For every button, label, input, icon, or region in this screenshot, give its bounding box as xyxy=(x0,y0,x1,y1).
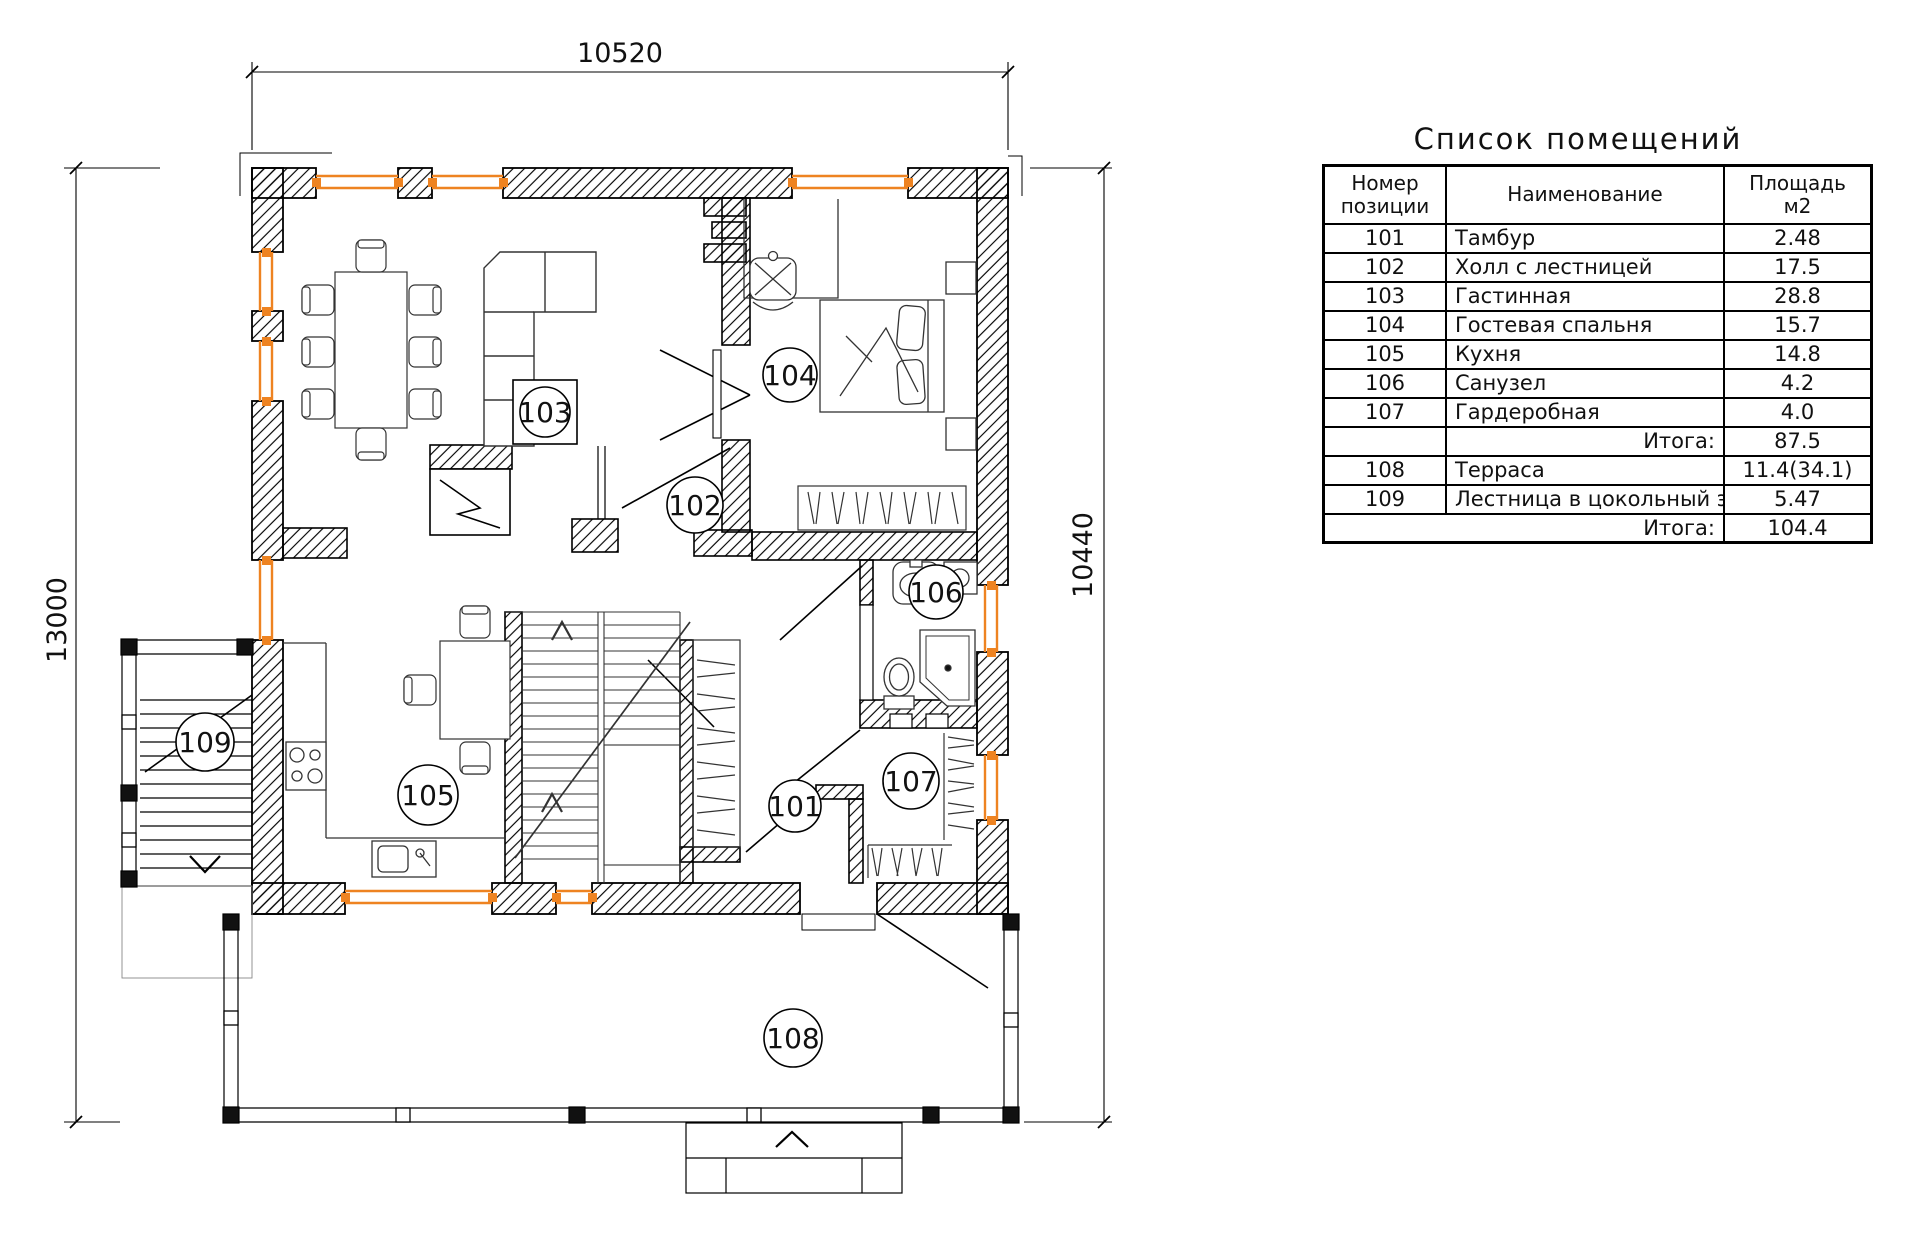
svg-text:104: 104 xyxy=(763,359,816,392)
room-label-103: 103 xyxy=(513,380,577,444)
header-area: Площадь м2 xyxy=(1724,166,1872,224)
cell-area: 4.2 xyxy=(1724,369,1872,398)
dimension-top-value: 10520 xyxy=(577,38,663,69)
table-row: 102 Холл с лестницей 17.5 xyxy=(1324,253,1872,282)
room-label-106: 106 xyxy=(909,565,963,619)
svg-text:108: 108 xyxy=(766,1022,819,1055)
room-labels: 103 104 102 106 105 101 107 108 xyxy=(176,348,963,1067)
cell-name: Гардеробная xyxy=(1446,398,1724,427)
cell-area: 4.0 xyxy=(1724,398,1872,427)
table-row: 103 Гастинная 28.8 xyxy=(1324,282,1872,311)
cell-num: 108 xyxy=(1324,456,1447,485)
dimension-right-value: 10440 xyxy=(1068,512,1099,598)
cell-num: 105 xyxy=(1324,340,1447,369)
svg-text:107: 107 xyxy=(884,765,937,798)
stove xyxy=(286,742,326,790)
svg-text:103: 103 xyxy=(518,396,571,429)
cell-area: 2.48 xyxy=(1724,224,1872,253)
room-list-title: Список помещений xyxy=(1322,122,1834,156)
cell-area: 5.47 xyxy=(1724,485,1872,514)
room-label-105: 105 xyxy=(398,765,458,825)
kitchen-table xyxy=(404,606,510,774)
room-label-108: 108 xyxy=(764,1009,822,1067)
svg-text:101: 101 xyxy=(768,790,821,823)
table-row: 104 Гостевая спальня 15.7 xyxy=(1324,311,1872,340)
hall-closet xyxy=(693,640,740,847)
cell-name: Лестница в цокольный эт. xyxy=(1446,485,1724,514)
floor-plan-sheet: 10520 13000 10440 xyxy=(0,0,1920,1255)
cell-name: Кухня xyxy=(1446,340,1724,369)
bed xyxy=(820,262,976,450)
room-label-109: 109 xyxy=(176,713,234,771)
dimension-left-value: 13000 xyxy=(42,577,73,663)
room-label-104: 104 xyxy=(763,348,817,402)
main-stairs xyxy=(505,612,690,883)
svg-text:106: 106 xyxy=(909,576,962,609)
header-position-number: Номер позиции xyxy=(1324,166,1447,224)
dimension-right xyxy=(1024,162,1112,1128)
room-label-107: 107 xyxy=(883,753,939,809)
header-name: Наименование xyxy=(1446,166,1724,224)
svg-text:105: 105 xyxy=(401,779,454,812)
entry-steps xyxy=(686,1123,902,1193)
room-label-102: 102 xyxy=(667,477,723,533)
cell-area: 17.5 xyxy=(1724,253,1872,282)
subtotal-row: Итога: 87.5 xyxy=(1324,427,1872,456)
subtotal-label: Итога: xyxy=(1446,427,1724,456)
wardrobe-rail-104 xyxy=(798,486,966,530)
cell-area: 28.8 xyxy=(1724,282,1872,311)
table-header-row: Номер позиции Наименование Площадь м2 xyxy=(1324,166,1872,224)
kitchen-sink xyxy=(372,841,436,877)
cell-num: 102 xyxy=(1324,253,1447,282)
cell-name: Терраса xyxy=(1446,456,1724,485)
svg-text:102: 102 xyxy=(668,489,721,522)
table-row: 106 Санузел 4.2 xyxy=(1324,369,1872,398)
cell-name: Холл с лестницей xyxy=(1446,253,1724,282)
cell-name: Гастинная xyxy=(1446,282,1724,311)
cell-name: Гостевая спальня xyxy=(1446,311,1724,340)
floor-plan-drawing: 10520 13000 10440 xyxy=(0,0,1180,1255)
office-chair xyxy=(750,252,796,311)
cell-num: 103 xyxy=(1324,282,1447,311)
cell-num: 104 xyxy=(1324,311,1447,340)
toilet xyxy=(884,658,914,709)
dining-table xyxy=(302,240,441,460)
cell-name: Тамбур xyxy=(1446,224,1724,253)
table-row: 108 Терраса 11.4(34.1) xyxy=(1324,456,1872,485)
cell-name: Санузел xyxy=(1446,369,1724,398)
room-label-101: 101 xyxy=(768,780,821,832)
cell-num: 106 xyxy=(1324,369,1447,398)
total-value: 104.4 xyxy=(1724,514,1872,543)
dimension-top xyxy=(246,62,1014,150)
cell-num: 101 xyxy=(1324,224,1447,253)
shower xyxy=(920,630,975,706)
dimension-left xyxy=(64,162,160,1128)
table-row: 109 Лестница в цокольный эт. 5.47 xyxy=(1324,485,1872,514)
table-row: 105 Кухня 14.8 xyxy=(1324,340,1872,369)
svg-text:109: 109 xyxy=(178,726,231,759)
cell-area: 14.8 xyxy=(1724,340,1872,369)
cell-num: 109 xyxy=(1324,485,1447,514)
room-list-table: Номер позиции Наименование Площадь м2 10… xyxy=(1322,164,1873,544)
terrace xyxy=(223,914,1019,1123)
total-row: Итога: 104.4 xyxy=(1324,514,1872,543)
table-row: 107 Гардеробная 4.0 xyxy=(1324,398,1872,427)
fireplace xyxy=(430,469,510,535)
cell-empty xyxy=(1324,427,1447,456)
subtotal-value: 87.5 xyxy=(1724,427,1872,456)
room-list-panel: Список помещений Номер позиции Наименова… xyxy=(1322,122,1834,544)
cell-num: 107 xyxy=(1324,398,1447,427)
cell-area: 11.4(34.1) xyxy=(1724,456,1872,485)
total-label: Итога: xyxy=(1324,514,1725,543)
cell-area: 15.7 xyxy=(1724,311,1872,340)
table-row: 101 Тамбур 2.48 xyxy=(1324,224,1872,253)
